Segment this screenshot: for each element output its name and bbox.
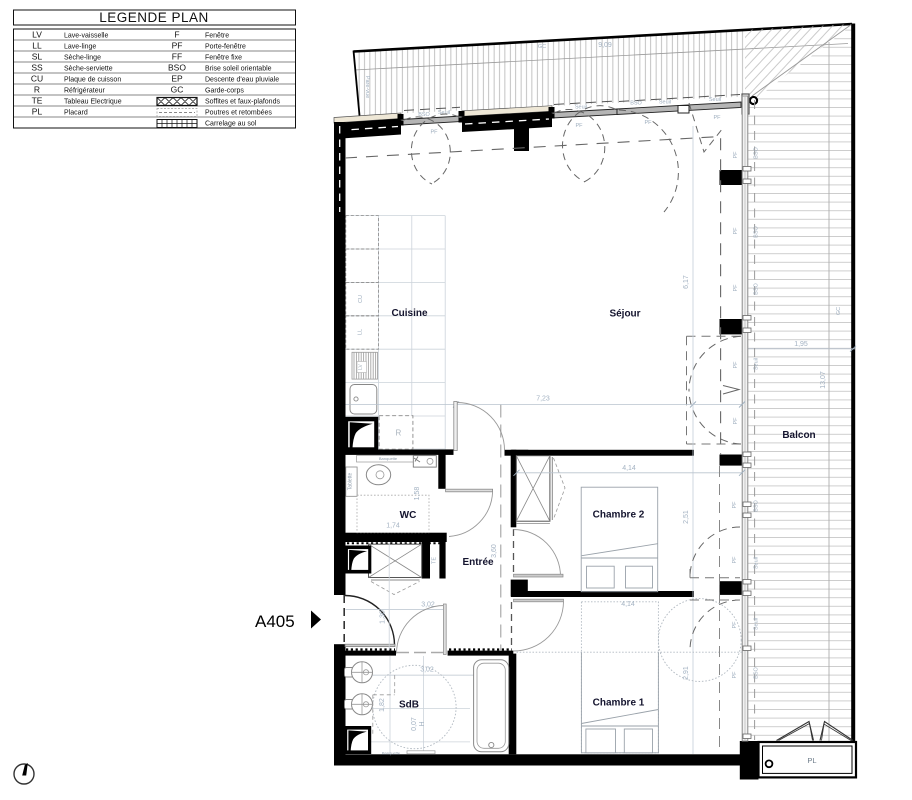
svg-text:CU: CU xyxy=(358,295,364,303)
svg-text:PF: PF xyxy=(733,151,739,159)
svg-text:Seuil: Seuil xyxy=(754,358,760,370)
svg-text:Lave-vaisselle: Lave-vaisselle xyxy=(64,32,108,39)
svg-text:Tablette: Tablette xyxy=(348,473,354,491)
svg-text:PF: PF xyxy=(732,621,738,629)
svg-text:1,30: 1,30 xyxy=(380,610,387,624)
svg-text:GC: GC xyxy=(538,44,546,50)
svg-text:GC: GC xyxy=(171,85,184,95)
svg-text:Réfrigérateur: Réfrigérateur xyxy=(64,87,106,94)
svg-text:Seuil: Seuil xyxy=(754,618,760,630)
svg-text:7,23: 7,23 xyxy=(536,396,550,403)
svg-text:Lave-linge: Lave-linge xyxy=(64,43,96,50)
svg-text:PF: PF xyxy=(644,120,652,126)
svg-text:PF: PF xyxy=(733,284,739,292)
svg-text:BSO: BSO xyxy=(754,146,760,158)
svg-text:1,82: 1,82 xyxy=(379,698,386,712)
svg-text:6,17: 6,17 xyxy=(683,275,690,289)
svg-text:2,91: 2,91 xyxy=(683,666,690,680)
svg-text:Cuisine: Cuisine xyxy=(391,308,428,319)
svg-text:Poutres et retombées: Poutres et retombées xyxy=(205,109,272,116)
svg-text:CU: CU xyxy=(31,74,43,84)
svg-text:Fenêtre fixe: Fenêtre fixe xyxy=(205,54,242,61)
svg-text:PF: PF xyxy=(732,671,738,679)
svg-text:PF: PF xyxy=(733,227,739,235)
svg-text:LL: LL xyxy=(358,329,364,335)
svg-text:Descente d'eau pluviale: Descente d'eau pluviale xyxy=(205,76,279,83)
svg-text:Tableau Electrique: Tableau Electrique xyxy=(64,98,122,105)
svg-text:Fenêtre: Fenêtre xyxy=(205,32,229,39)
svg-text:0,07: 0,07 xyxy=(411,717,418,731)
svg-text:LV: LV xyxy=(32,30,42,40)
svg-text:1,74: 1,74 xyxy=(386,523,400,530)
svg-text:A405: A405 xyxy=(255,612,295,631)
svg-text:Banquette: Banquette xyxy=(382,751,401,756)
svg-text:TE: TE xyxy=(32,96,43,106)
svg-text:BSO: BSO xyxy=(754,282,760,294)
svg-text:LL: LL xyxy=(32,41,42,51)
svg-text:R: R xyxy=(34,85,40,95)
svg-text:3,60: 3,60 xyxy=(491,544,498,558)
svg-text:Seuil: Seuil xyxy=(659,100,671,106)
svg-text:PF: PF xyxy=(575,123,583,129)
svg-text:WC: WC xyxy=(400,510,417,521)
svg-text:Soffites et faux-plafonds: Soffites et faux-plafonds xyxy=(205,98,280,105)
svg-text:LEGENDE PLAN: LEGENDE PLAN xyxy=(99,10,209,25)
svg-text:PF: PF xyxy=(172,41,183,51)
svg-text:Placard: Placard xyxy=(64,109,88,116)
svg-text:R: R xyxy=(396,429,402,438)
svg-text:FF: FF xyxy=(172,52,182,62)
svg-text:PF: PF xyxy=(732,556,738,564)
svg-text:Seuil: Seuil xyxy=(709,97,721,103)
svg-text:LV: LV xyxy=(358,363,364,369)
svg-text:Garde-corps: Garde-corps xyxy=(205,87,244,94)
svg-text:Pare-vue: Pare-vue xyxy=(364,76,370,98)
svg-text:1,95: 1,95 xyxy=(794,341,808,348)
svg-text:Chambre 2: Chambre 2 xyxy=(593,510,645,521)
svg-text:PL: PL xyxy=(32,107,43,117)
svg-text:PF: PF xyxy=(733,361,739,369)
svg-text:BSO: BSO xyxy=(754,225,760,237)
svg-text:Seuil: Seuil xyxy=(575,105,587,111)
svg-text:Porte-fenêtre: Porte-fenêtre xyxy=(205,43,246,50)
svg-text:H: H xyxy=(419,721,426,726)
svg-text:GC: GC xyxy=(836,307,842,315)
svg-text:EP: EP xyxy=(171,74,183,84)
svg-text:Brise soleil orientable: Brise soleil orientable xyxy=(205,65,272,72)
svg-text:3,02: 3,02 xyxy=(420,667,434,674)
svg-text:Entrée: Entrée xyxy=(462,557,494,568)
svg-text:Plaque de cuisson: Plaque de cuisson xyxy=(64,76,121,83)
svg-text:BSO: BSO xyxy=(630,101,642,107)
svg-text:Séjour: Séjour xyxy=(609,309,640,320)
svg-text:BSO: BSO xyxy=(168,63,186,73)
svg-text:4,14: 4,14 xyxy=(621,601,635,608)
svg-text:Seuil: Seuil xyxy=(754,557,760,569)
svg-text:Balcon: Balcon xyxy=(782,430,815,441)
svg-text:PF: PF xyxy=(732,501,738,509)
svg-text:TE: TE xyxy=(432,557,438,564)
svg-text:SS: SS xyxy=(31,63,43,73)
svg-text:Banquette: Banquette xyxy=(379,456,398,461)
svg-text:Seuil: Seuil xyxy=(438,110,450,116)
svg-text:BSO: BSO xyxy=(754,666,760,678)
svg-text:SL: SL xyxy=(32,52,43,62)
svg-text:9,09: 9,09 xyxy=(598,42,612,49)
svg-text:Sèche-serviette: Sèche-serviette xyxy=(64,65,113,72)
svg-text:PF: PF xyxy=(430,130,438,136)
svg-text:SdB: SdB xyxy=(399,700,419,711)
svg-text:Sèche-linge: Sèche-linge xyxy=(64,54,101,61)
svg-text:PF: PF xyxy=(713,115,721,121)
svg-text:F: F xyxy=(174,30,179,40)
svg-text:PF: PF xyxy=(733,417,739,425)
svg-text:1,58: 1,58 xyxy=(414,487,421,501)
svg-text:Carrelage au sol: Carrelage au sol xyxy=(205,120,257,127)
svg-text:2,51: 2,51 xyxy=(683,510,690,524)
svg-text:13,07: 13,07 xyxy=(820,371,827,389)
svg-text:BSO: BSO xyxy=(754,499,760,511)
svg-text:Chambre 1: Chambre 1 xyxy=(593,698,645,709)
svg-text:3,02: 3,02 xyxy=(421,602,435,609)
svg-text:4,14: 4,14 xyxy=(622,465,636,472)
svg-text:PL: PL xyxy=(807,756,816,765)
